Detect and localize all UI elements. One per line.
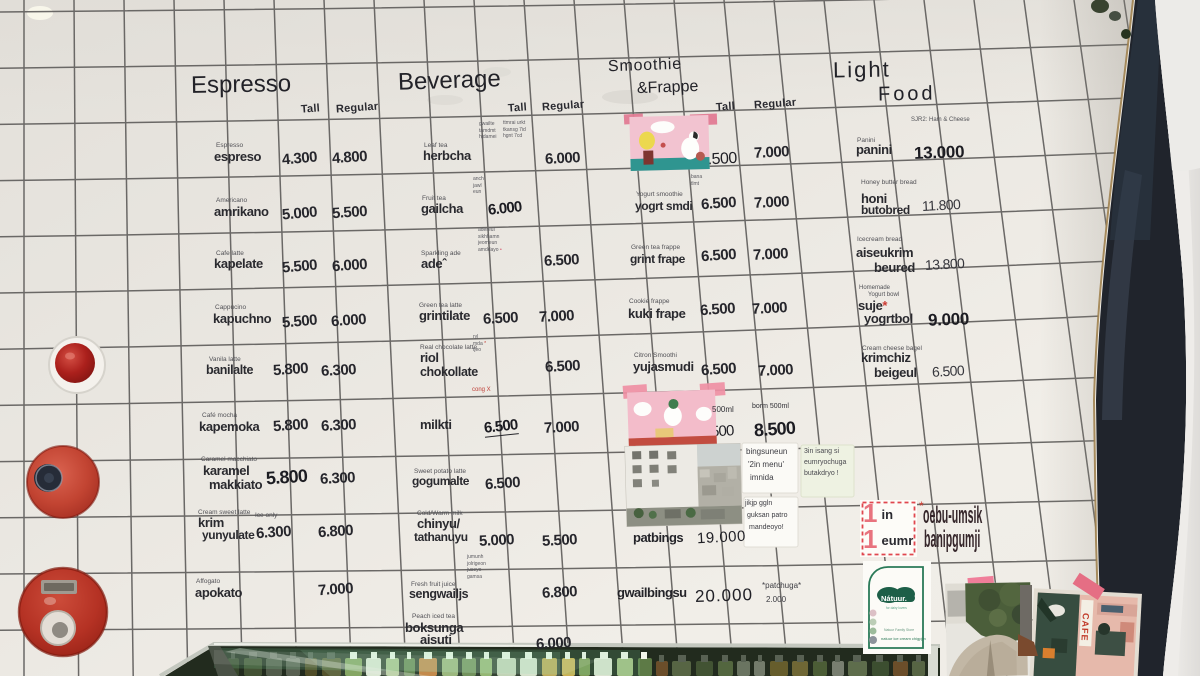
svg-text:Nátuur.: Nátuur.	[881, 594, 907, 603]
svg-text:natuur ice cream chigpjm: natuur ice cream chigpjm	[881, 636, 926, 641]
svg-text:CAFE: CAFE	[1079, 613, 1090, 642]
svg-text:Natuur Family Store: Natuur Family Store	[884, 628, 914, 632]
svg-text:for dairy lovers: for dairy lovers	[886, 606, 907, 610]
